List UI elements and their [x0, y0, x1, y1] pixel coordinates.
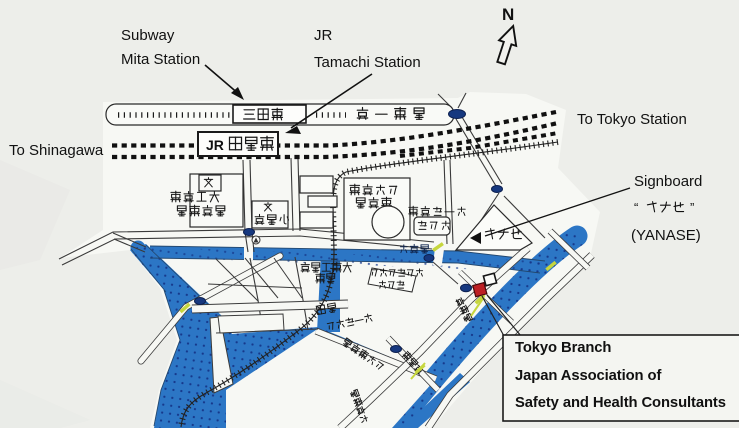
svg-text:“: “ — [634, 200, 638, 215]
svg-text:”: ” — [690, 200, 694, 215]
svg-text:Japan Association of: Japan Association of — [515, 368, 661, 384]
svg-text:To Tokyo Station: To Tokyo Station — [577, 111, 687, 128]
svg-text:JR: JR — [206, 137, 224, 153]
svg-text:Safety and Health Consultants: Safety and Health Consultants — [515, 395, 726, 411]
svg-text:N: N — [502, 5, 514, 24]
svg-text:Subway: Subway — [121, 27, 175, 44]
svg-text:To Shinagawa: To Shinagawa — [9, 142, 104, 159]
svg-text:Tokyo Branch: Tokyo Branch — [515, 340, 611, 356]
svg-text:Signboard: Signboard — [634, 173, 702, 190]
svg-text:Mita Station: Mita Station — [121, 51, 200, 68]
svg-text:Tamachi Station: Tamachi Station — [314, 54, 421, 71]
svg-text:JR: JR — [314, 27, 333, 44]
svg-text:(YANASE): (YANASE) — [631, 227, 701, 244]
